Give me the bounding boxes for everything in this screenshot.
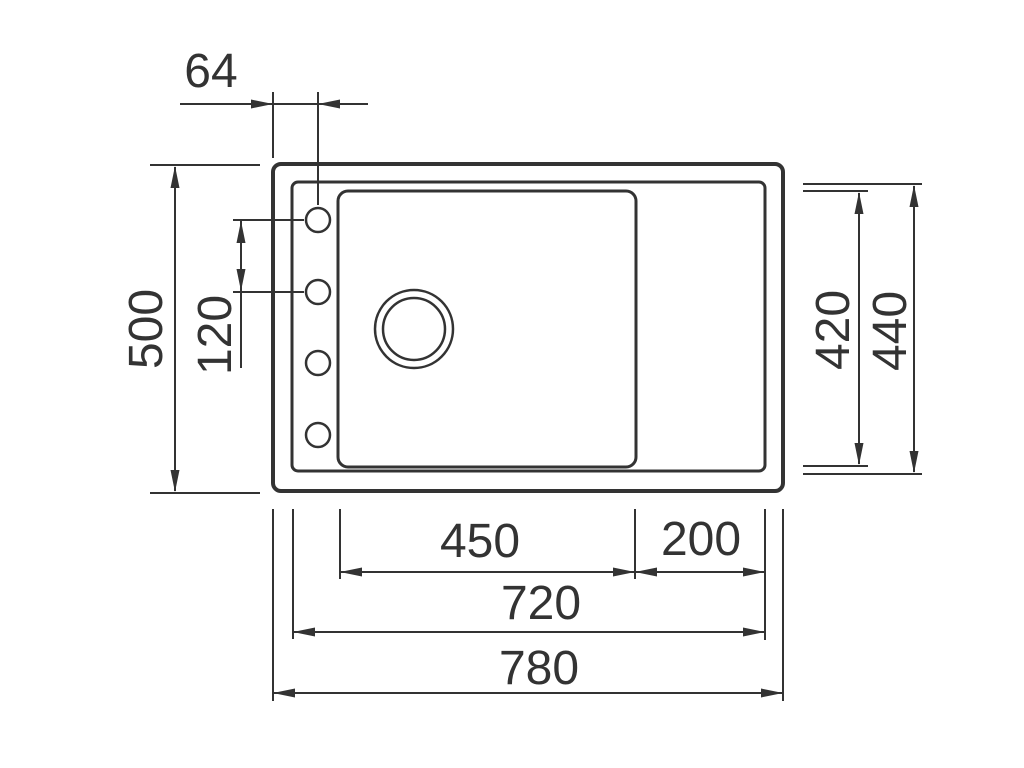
sink-inner-rim — [292, 182, 765, 471]
arrowhead-right-icon — [743, 568, 765, 577]
arrowhead-right-icon — [761, 689, 783, 698]
arrowhead-up-icon — [237, 221, 246, 243]
dim-bowl-height-420: 420 — [803, 191, 868, 466]
arrowhead-left-icon — [293, 628, 315, 637]
arrowhead-down-icon — [237, 269, 246, 291]
arrowhead-down-icon — [910, 451, 919, 473]
arrowhead-up-icon — [171, 166, 180, 188]
arrowhead-left-icon — [340, 568, 362, 577]
arrowhead-left-icon — [635, 568, 657, 577]
dim-label-440: 440 — [864, 291, 917, 371]
tap-hole-2 — [306, 280, 330, 304]
dim-bowl-width-450: 450 — [340, 515, 635, 577]
dim-label-120: 120 — [189, 295, 242, 375]
tap-hole-4 — [306, 423, 330, 447]
dim-label-780: 780 — [499, 642, 579, 695]
drain-inner-circle — [383, 298, 445, 360]
arrowhead-right-icon — [251, 100, 273, 109]
tap-hole-1 — [306, 208, 330, 232]
arrowhead-left-icon — [273, 689, 295, 698]
drain-outer-circle — [375, 290, 453, 368]
dim-label-64: 64 — [184, 45, 237, 98]
dim-label-720: 720 — [501, 577, 581, 630]
arrowhead-right-icon — [613, 568, 635, 577]
sink-outer-edge — [273, 164, 783, 491]
drawing-canvas: 64 500 120 420 440 — [0, 0, 1024, 768]
dim-label-500: 500 — [120, 289, 173, 369]
sink-body — [273, 164, 783, 491]
dim-label-420: 420 — [807, 290, 860, 370]
arrowhead-up-icon — [910, 185, 919, 207]
tap-hole-3 — [306, 351, 330, 375]
arrowhead-up-icon — [855, 192, 864, 214]
dim-inner-width-720: 720 — [293, 577, 765, 637]
dim-label-450: 450 — [440, 515, 520, 568]
dim-drainer-width-200: 200 — [635, 513, 765, 577]
arrowhead-left-icon — [318, 100, 340, 109]
arrowhead-down-icon — [855, 443, 864, 465]
arrowhead-down-icon — [171, 470, 180, 492]
arrowhead-right-icon — [743, 628, 765, 637]
dim-overall-width-780: 780 — [273, 642, 783, 698]
dim-label-200: 200 — [661, 513, 741, 566]
sink-technical-drawing: 64 500 120 420 440 — [0, 0, 1024, 768]
dim-hole-spacing-120: 120 — [189, 220, 304, 375]
